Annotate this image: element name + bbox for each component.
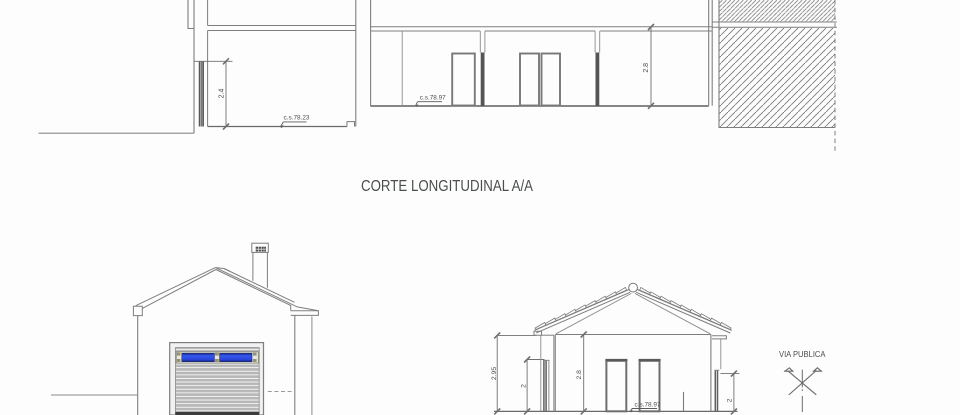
svg-text:2.8: 2.8 (576, 370, 583, 380)
svg-text:c.s.78.97: c.s.78.97 (420, 95, 446, 102)
svg-text:VIA PUBLICA: VIA PUBLICA (779, 349, 826, 359)
svg-text:CORTE LONGITUDINAL A/A: CORTE LONGITUDINAL A/A (361, 178, 533, 195)
svg-text:2.95: 2.95 (491, 367, 498, 380)
svg-text:2: 2 (727, 398, 734, 402)
svg-text:2: 2 (520, 384, 527, 388)
svg-text:c.s.78.23: c.s.78.23 (284, 115, 310, 122)
svg-text:2.4: 2.4 (219, 89, 226, 99)
svg-text:2.8: 2.8 (643, 63, 650, 73)
svg-text:c.s.78.97: c.s.78.97 (635, 402, 661, 409)
